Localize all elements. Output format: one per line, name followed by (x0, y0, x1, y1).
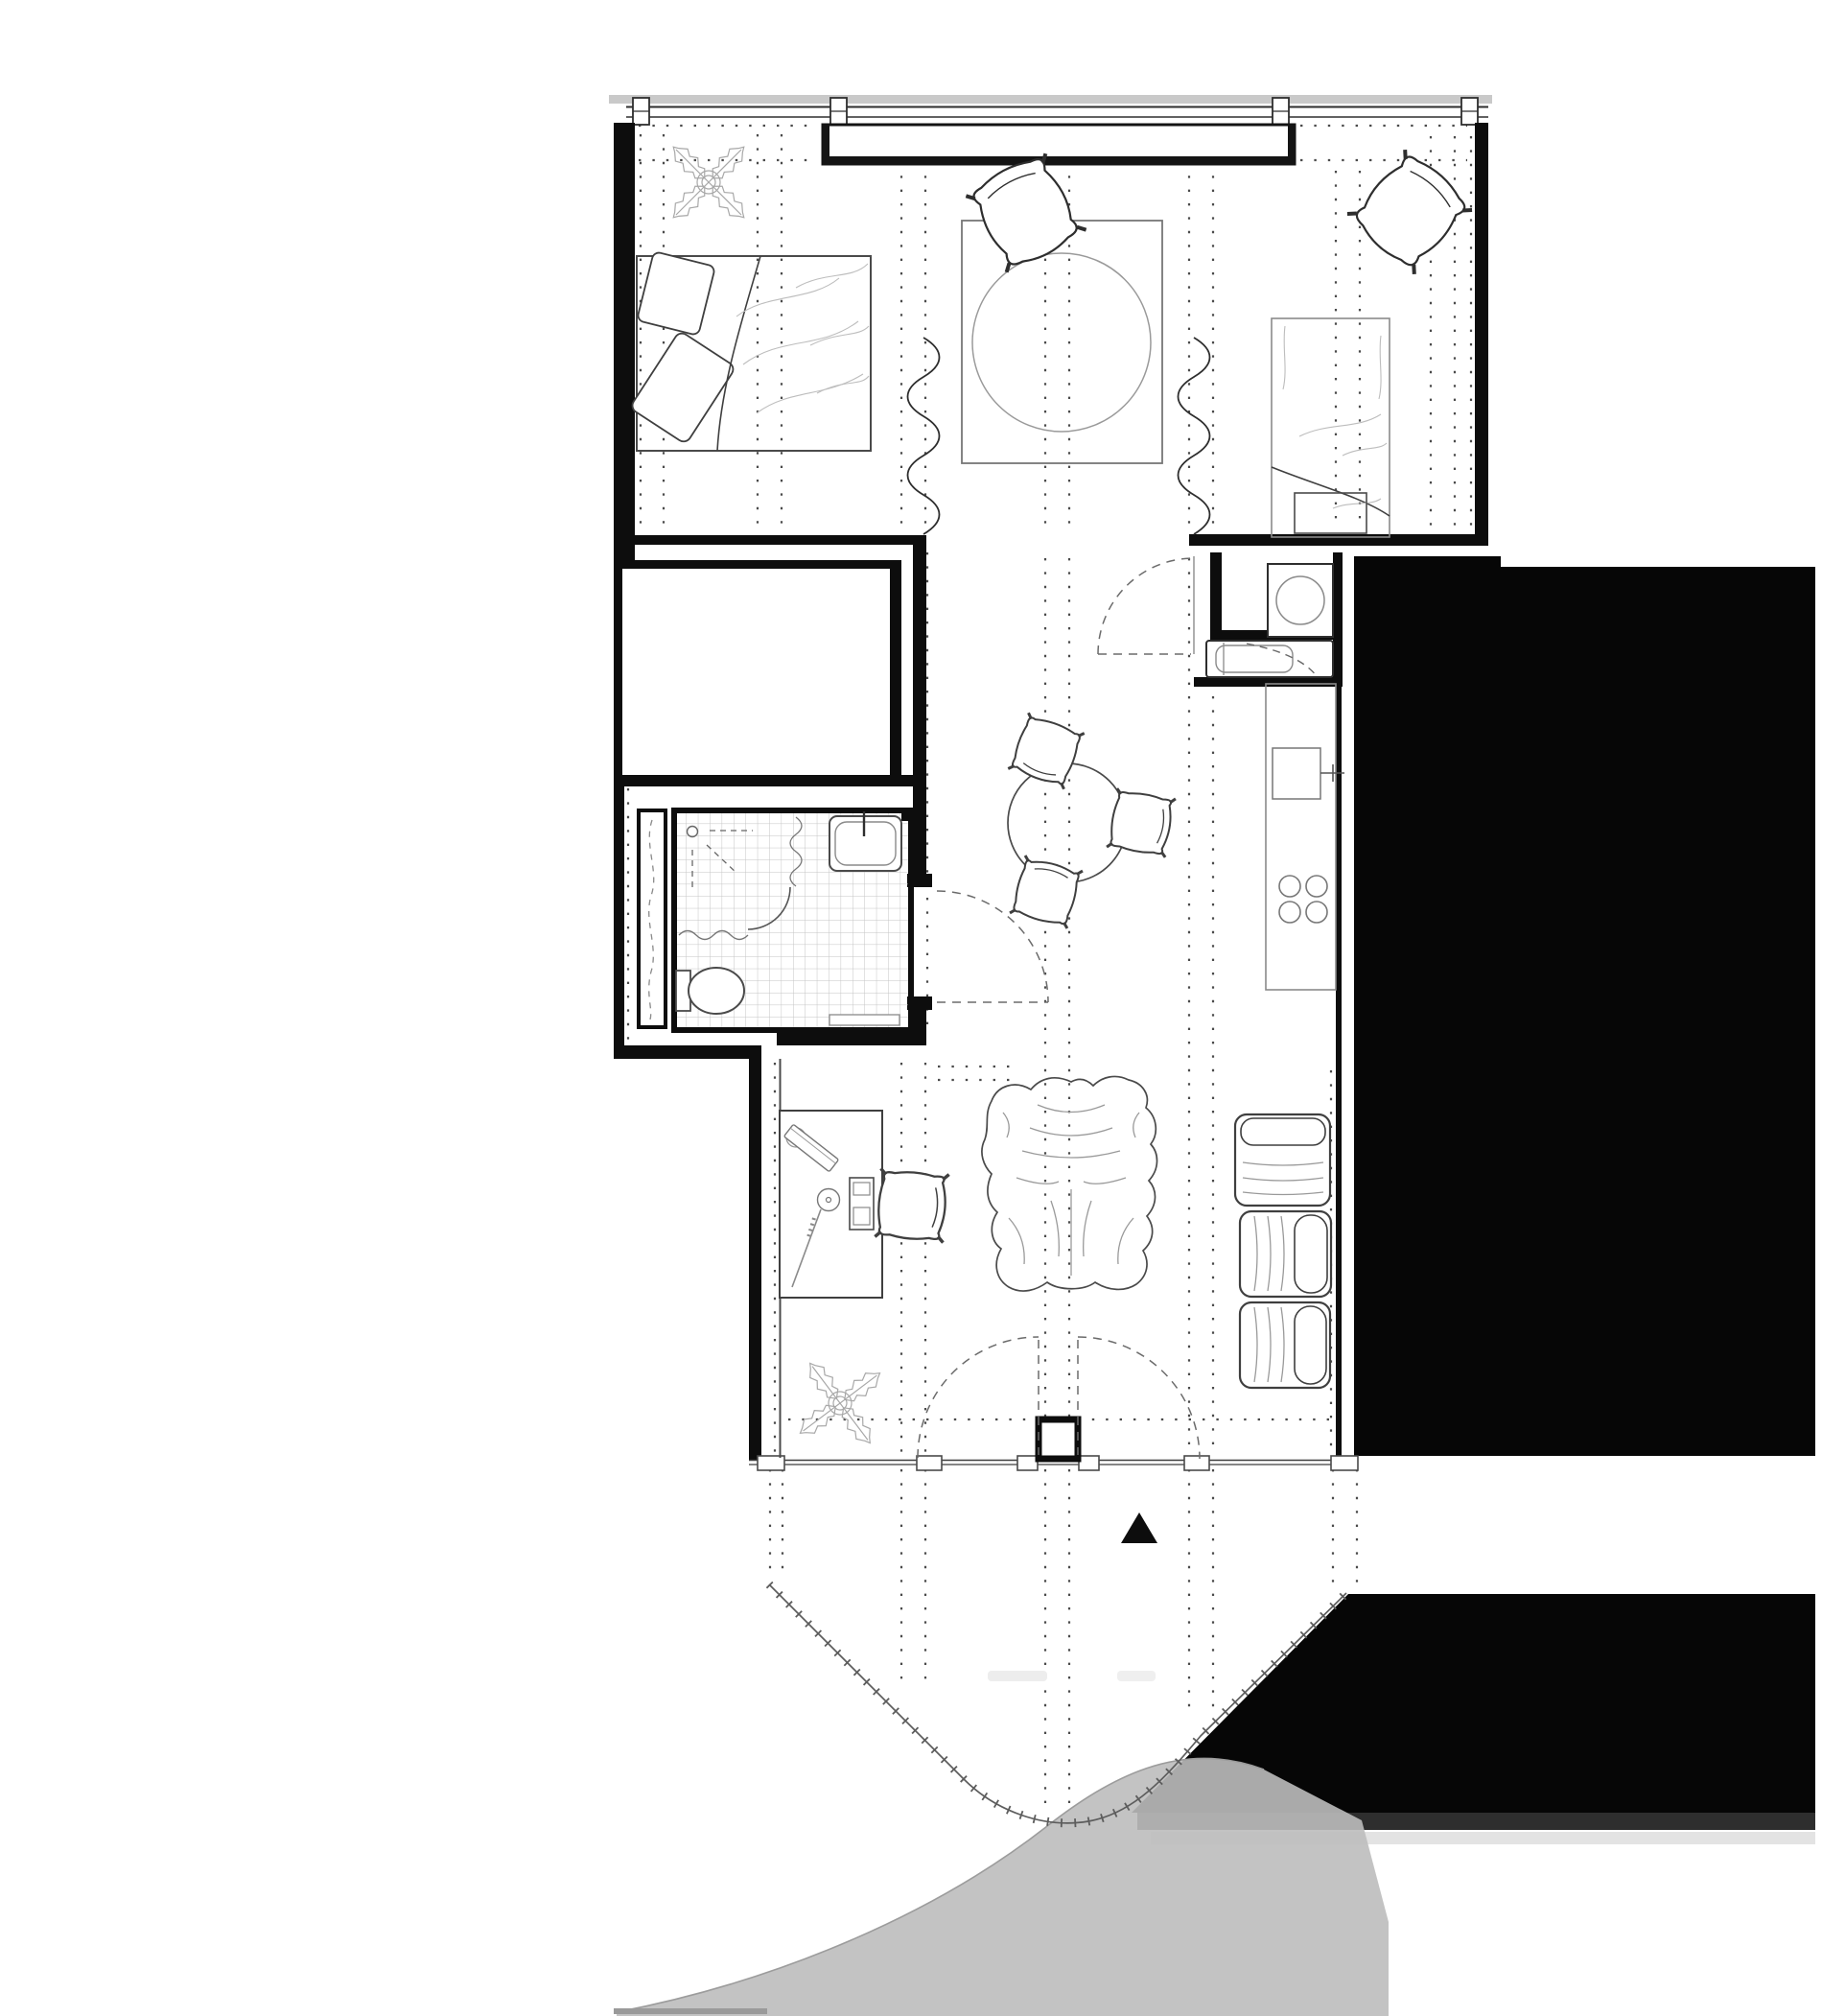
wall-main-right (1189, 534, 1488, 546)
toilet (676, 968, 744, 1014)
bathroom (639, 810, 911, 1030)
wall-hall-bottom (777, 1032, 926, 1045)
faded-mark-left (988, 1671, 1047, 1681)
wall-bedroom-bottom-inner (614, 560, 901, 569)
niche-wall-right (1333, 552, 1343, 687)
wall-bathroom-top (614, 775, 913, 786)
sofa-module-1 (1235, 1114, 1330, 1206)
floor-plan-page (0, 0, 1822, 2016)
niche-sink-unit (1206, 641, 1333, 677)
wall-left-upper (614, 123, 635, 568)
window-shading-band (609, 95, 1492, 104)
door-pillar (1039, 1419, 1078, 1459)
faded-mark-right (1117, 1671, 1156, 1681)
desk-mouse (818, 1189, 840, 1211)
sofa (1235, 1114, 1331, 1388)
wall-thin-right (1336, 687, 1342, 1456)
wall-closet (823, 125, 1295, 164)
tall-cabinet (639, 810, 666, 1027)
niche-wall-bottom (1194, 677, 1343, 687)
wall-bottom-left-step (614, 1045, 761, 1059)
wall-inner-vertical (890, 560, 901, 775)
floor-plan-drawing (0, 0, 1822, 2016)
wall-hall-left (913, 535, 926, 874)
wall-right (1475, 123, 1488, 546)
washbasin (829, 811, 901, 871)
terrace-bottom-line (614, 2008, 767, 2014)
wall-left-mid (614, 568, 622, 775)
wall-left-bathroom (614, 786, 624, 1047)
bath-mat (829, 1015, 899, 1025)
wall-left-lower (749, 1045, 761, 1460)
washing-machine (1268, 564, 1333, 637)
sofa-module-3 (1240, 1302, 1330, 1388)
desk (780, 1111, 882, 1298)
adjacent-building-mass (1354, 556, 1815, 1456)
desk-chair (875, 1168, 948, 1242)
monitor (850, 1178, 874, 1230)
sofa-module-2 (1240, 1211, 1331, 1297)
wall-bedroom-bottom-outer (635, 535, 923, 545)
